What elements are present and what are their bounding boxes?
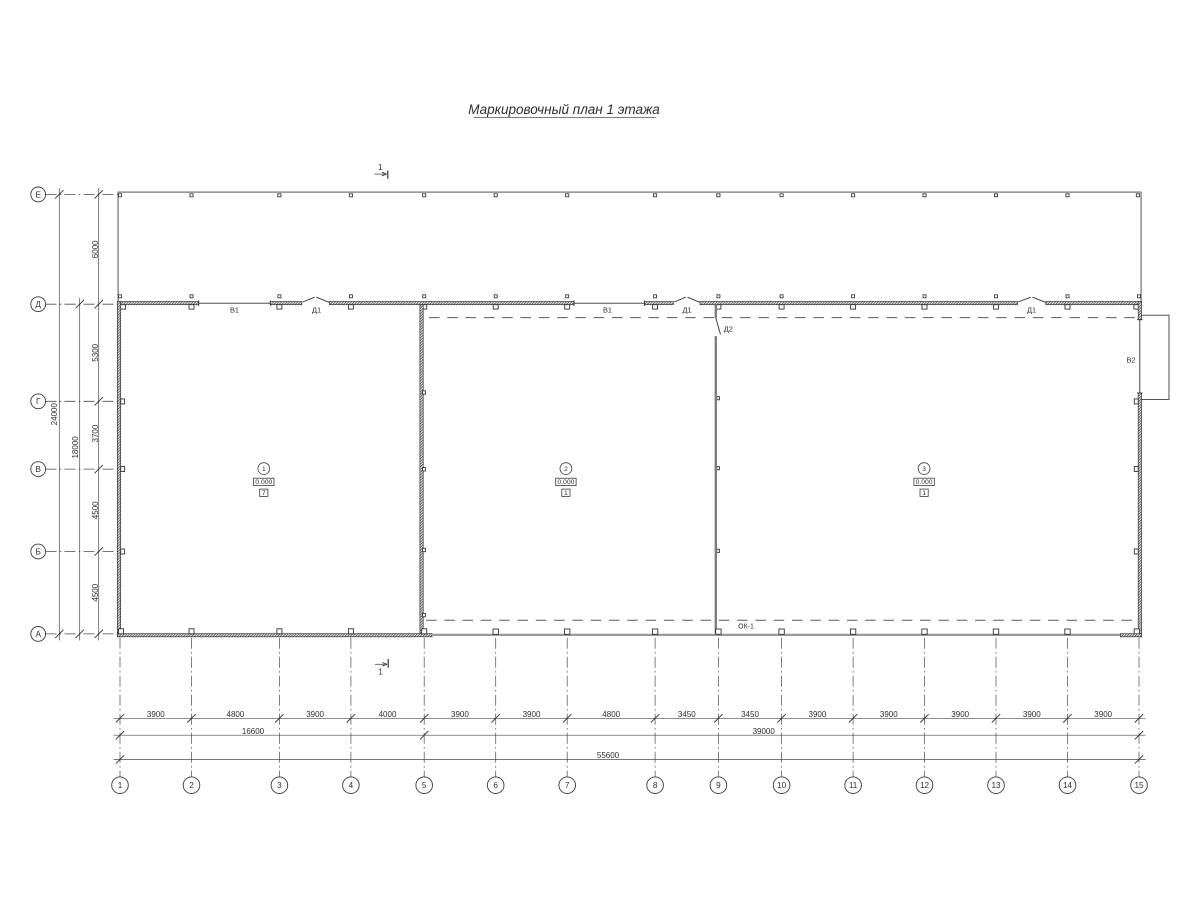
svg-text:4800: 4800 [227,710,245,719]
svg-text:3: 3 [277,781,282,790]
svg-text:Г: Г [36,397,41,406]
svg-text:4800: 4800 [602,710,620,719]
svg-text:8: 8 [653,781,658,790]
svg-text:Д2: Д2 [724,324,733,333]
svg-text:7: 7 [565,781,570,790]
svg-text:В1: В1 [230,306,239,315]
svg-text:5300: 5300 [91,343,100,361]
svg-text:2: 2 [189,781,194,790]
svg-text:24000: 24000 [50,403,59,426]
svg-text:7: 7 [262,490,266,497]
svg-text:В1: В1 [603,306,612,315]
svg-text:12: 12 [920,781,930,790]
svg-text:18000: 18000 [71,436,80,459]
svg-text:3: 3 [922,466,926,473]
svg-text:4: 4 [349,781,354,790]
svg-text:3900: 3900 [306,710,324,719]
svg-text:1: 1 [922,490,926,497]
svg-text:39000: 39000 [753,727,776,736]
svg-text:6: 6 [493,781,498,790]
svg-text:1: 1 [378,163,383,172]
svg-text:В: В [35,465,41,474]
svg-text:55600: 55600 [597,751,620,760]
svg-text:15: 15 [1134,781,1144,790]
svg-text:Е: Е [35,190,41,199]
svg-text:14: 14 [1063,781,1073,790]
svg-text:3450: 3450 [678,710,696,719]
svg-text:В2: В2 [1126,356,1135,365]
svg-text:А: А [35,630,41,639]
svg-text:0.000: 0.000 [916,479,933,486]
svg-text:3900: 3900 [809,710,827,719]
svg-text:1: 1 [564,490,568,497]
svg-text:2: 2 [564,466,568,473]
svg-text:3900: 3900 [880,710,898,719]
svg-text:0.000: 0.000 [255,479,272,486]
svg-text:3900: 3900 [1023,710,1041,719]
svg-text:3450: 3450 [741,710,759,719]
svg-text:4500: 4500 [91,501,100,519]
svg-text:Д: Д [35,300,41,309]
svg-text:4500: 4500 [91,583,100,601]
svg-text:ОК-1: ОК-1 [738,624,754,631]
svg-text:10: 10 [777,781,787,790]
svg-text:1: 1 [118,781,123,790]
svg-text:Д1: Д1 [312,306,321,315]
svg-text:13: 13 [991,781,1001,790]
svg-text:3700: 3700 [91,424,100,442]
svg-text:Маркировочный план 1 этажа: Маркировочный план 1 этажа [468,102,660,117]
svg-text:5: 5 [422,781,427,790]
svg-text:3900: 3900 [951,710,969,719]
svg-text:1: 1 [378,668,383,677]
svg-text:16600: 16600 [242,727,265,736]
svg-text:3900: 3900 [523,710,541,719]
svg-text:Д1: Д1 [682,306,691,315]
svg-text:Б: Б [36,547,41,556]
svg-text:6000: 6000 [91,240,100,258]
svg-text:9: 9 [716,781,721,790]
svg-text:3900: 3900 [1094,710,1112,719]
svg-text:0.000: 0.000 [557,479,574,486]
svg-text:4000: 4000 [379,710,397,719]
svg-text:Д1: Д1 [1027,306,1036,315]
svg-text:1: 1 [262,466,266,473]
svg-text:3900: 3900 [147,710,165,719]
svg-text:11: 11 [849,781,858,790]
svg-text:3900: 3900 [451,710,469,719]
